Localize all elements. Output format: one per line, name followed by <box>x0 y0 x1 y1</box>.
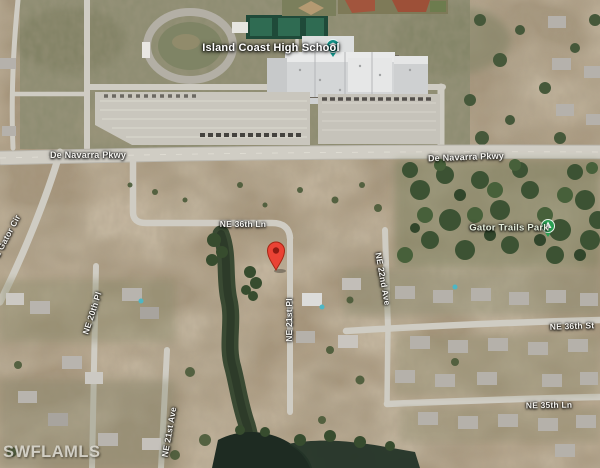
de-navarra-pkwy-road <box>0 152 600 158</box>
tennis-courts <box>246 15 328 39</box>
satellite-map[interactable]: Island Coast High School Gator Trails Pa… <box>0 0 600 468</box>
parking-lot <box>95 92 440 145</box>
satellite-basemap <box>0 0 600 468</box>
mls-watermark: SWFLAMLS <box>3 443 100 462</box>
